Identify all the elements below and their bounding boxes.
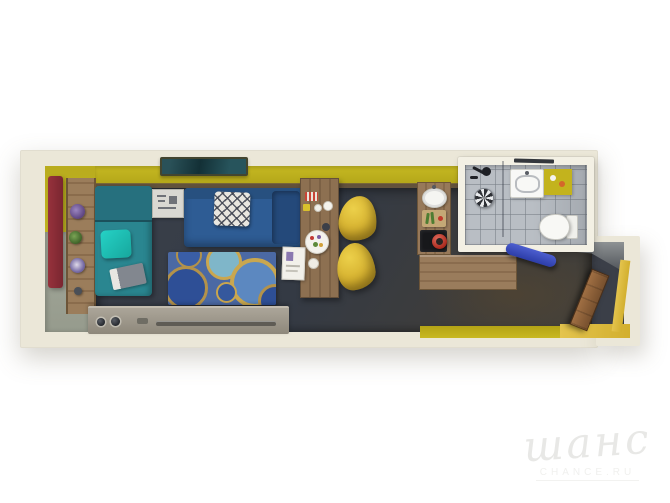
pillow-teal (100, 229, 131, 259)
vegetable (425, 213, 430, 224)
vanity-faucet (525, 171, 529, 175)
food-item (313, 242, 318, 247)
dark-cup (322, 223, 330, 231)
decor-plate-purple (70, 204, 85, 219)
cup (323, 201, 333, 211)
decor-knob (74, 287, 82, 295)
dining-table (300, 178, 339, 298)
decor-plate-green (69, 231, 82, 244)
food-plate (305, 230, 329, 254)
window-glass (160, 157, 248, 176)
sofa-teal-backrest (95, 186, 152, 222)
sofa-blue (184, 188, 303, 247)
bathroom-yellow-counter (544, 169, 572, 195)
north-wall-yellow (95, 166, 458, 184)
food-item (310, 236, 314, 240)
shower-glass-partition (502, 161, 504, 237)
cutting-board (422, 210, 446, 227)
sofa-blue-armrest (272, 191, 300, 244)
food-item (319, 243, 323, 247)
rug-circle (176, 252, 202, 268)
cup (314, 204, 322, 212)
shower-valve (470, 176, 478, 179)
red-pot (432, 234, 447, 249)
soundbar (156, 321, 276, 326)
magazine-photo (286, 252, 293, 261)
speaker-knob (111, 317, 120, 326)
sideboard (88, 306, 289, 334)
kitchen-counter-north (417, 182, 451, 255)
rug-circle (168, 266, 208, 305)
floorplan-render: шанс CHANCE.RU (0, 0, 670, 503)
rug (168, 252, 276, 305)
basin (515, 175, 540, 193)
shower-head (482, 167, 491, 176)
bathroom-vanity-sink (510, 169, 544, 198)
bathroom (458, 157, 594, 252)
cup (308, 258, 319, 269)
toiletry (559, 181, 565, 187)
faucet (432, 185, 436, 189)
watermark-brand: шанс (514, 419, 661, 467)
magazine-tray (281, 247, 305, 281)
vegetable (430, 212, 434, 224)
kitchen-sink (422, 188, 447, 208)
tomato (438, 216, 443, 221)
pillow-patterned (213, 191, 250, 226)
toilet (539, 214, 577, 239)
food-item (317, 235, 321, 239)
sofa-teal (95, 186, 152, 296)
magazine-line (286, 270, 298, 272)
toilet-bowl (539, 214, 570, 240)
toiletry (550, 175, 556, 181)
kitchen-counter-bar (419, 255, 517, 290)
speaker-knob (97, 318, 105, 326)
side-shelf-unit (152, 189, 184, 218)
shower-drain (474, 188, 494, 208)
book-on-sofa (109, 263, 147, 291)
yellow-box (303, 204, 310, 211)
curtain (48, 176, 63, 288)
bathroom-mirror (514, 158, 554, 163)
magazine-line (286, 265, 300, 267)
rug-circle (216, 282, 237, 303)
remote (137, 318, 148, 324)
striped-box (305, 192, 318, 201)
watermark: шанс CHANCE.RU (515, 424, 660, 481)
decor-plate-violet (70, 258, 85, 273)
